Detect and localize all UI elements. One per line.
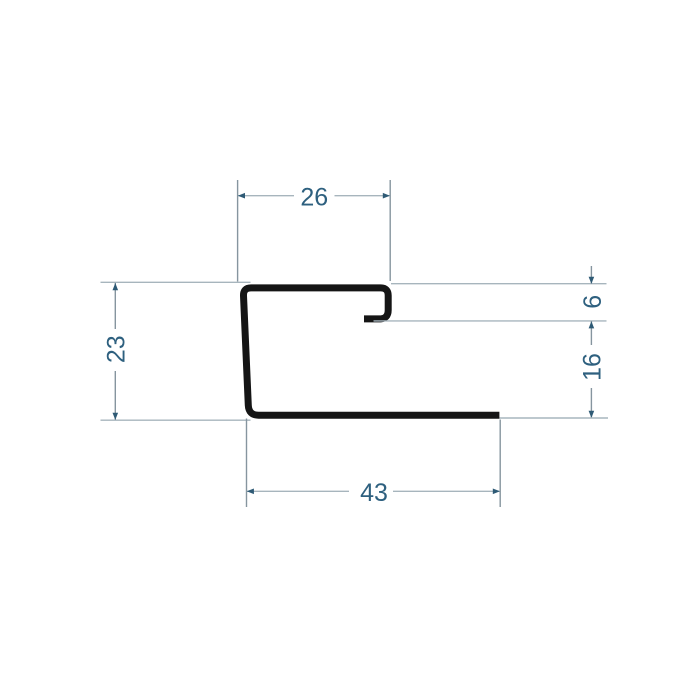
svg-text:6: 6 bbox=[579, 295, 607, 309]
svg-text:16: 16 bbox=[579, 353, 607, 381]
svg-text:26: 26 bbox=[300, 184, 328, 212]
svg-text:43: 43 bbox=[360, 479, 388, 507]
svg-text:23: 23 bbox=[102, 335, 130, 363]
